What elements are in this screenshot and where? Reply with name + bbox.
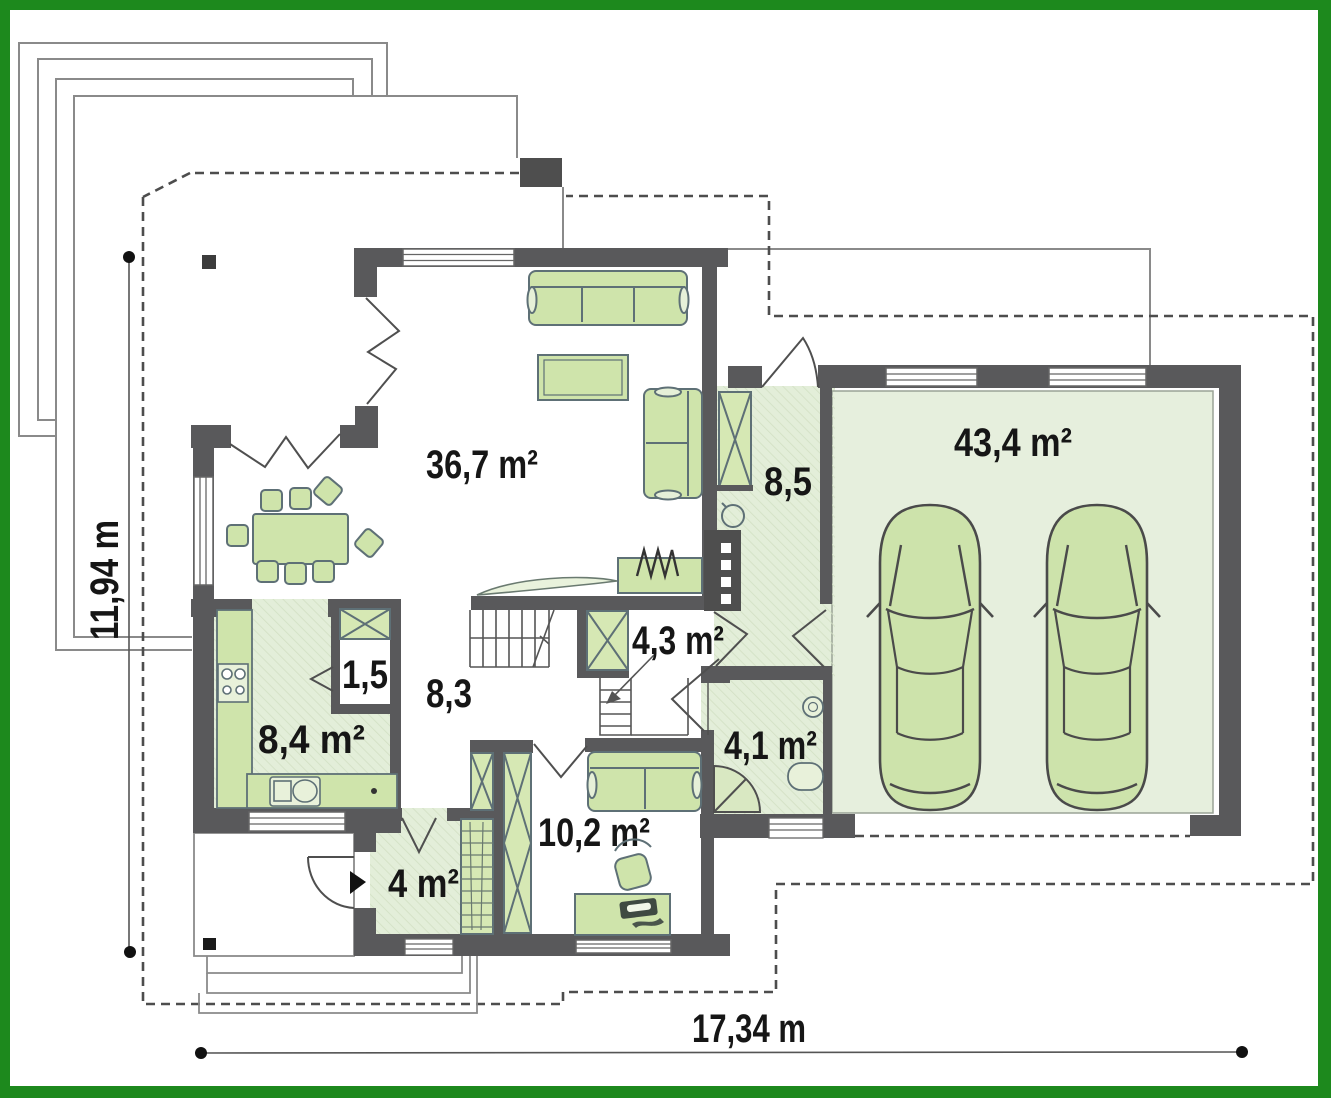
svg-text:43,4 m²: 43,4 m²: [954, 421, 1072, 465]
svg-text:11,94 m: 11,94 m: [83, 520, 127, 640]
svg-text:8,5: 8,5: [764, 460, 812, 504]
svg-text:4,3 m²: 4,3 m²: [632, 619, 724, 663]
svg-text:4,1 m²: 4,1 m²: [724, 724, 817, 768]
svg-text:4 m²: 4 m²: [388, 862, 459, 906]
svg-text:17,34 m: 17,34 m: [692, 1007, 806, 1051]
svg-text:10,2 m²: 10,2 m²: [538, 811, 650, 855]
svg-text:36,7 m²: 36,7 m²: [426, 443, 538, 487]
svg-text:8,3: 8,3: [426, 672, 472, 716]
svg-text:8,4 m²: 8,4 m²: [258, 718, 365, 762]
svg-text:1,5: 1,5: [342, 653, 388, 697]
